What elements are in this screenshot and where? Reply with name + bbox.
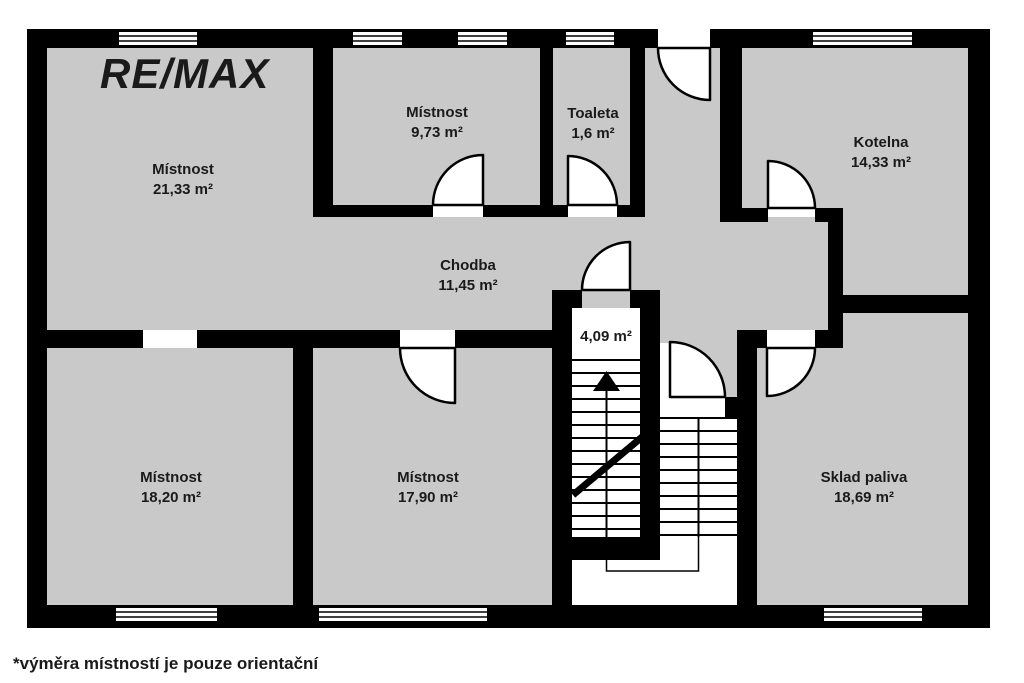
wall-segment xyxy=(197,330,400,348)
wall-segment xyxy=(313,205,433,217)
room-label-name: Místnost xyxy=(152,161,214,178)
stair-lower-landing xyxy=(572,560,660,605)
entry-door-opening xyxy=(658,29,710,48)
wall-segment xyxy=(572,537,660,560)
room-sklad-paliva-notch xyxy=(843,313,968,348)
wall-segment xyxy=(828,295,968,313)
room-label-name: Místnost xyxy=(140,469,202,486)
room-label-area: 1,6 m² xyxy=(571,125,614,142)
room-label-name: Sklad paliva xyxy=(821,469,908,486)
room-kotelna-lower xyxy=(843,208,968,295)
window-marker xyxy=(118,31,198,46)
wall-segment xyxy=(27,29,47,628)
wall-segment xyxy=(640,290,660,560)
wall-segment xyxy=(552,290,582,308)
room-label-name: Kotelna xyxy=(853,134,909,151)
remax-logo: RE/MAX xyxy=(100,50,271,97)
wall-segment xyxy=(313,29,333,217)
room-label-area: 4,09 m² xyxy=(580,328,632,345)
floor-plan: Místnost 21,33 m² Místnost 9,73 m² Toale… xyxy=(0,0,1024,683)
room-label-area: 14,33 m² xyxy=(851,154,911,171)
room-label-area: 21,33 m² xyxy=(153,181,213,198)
floor-plan-page: Místnost 21,33 m² Místnost 9,73 m² Toale… xyxy=(0,0,1024,683)
room-label-area: 9,73 m² xyxy=(411,124,463,141)
room-label-name: Místnost xyxy=(397,469,459,486)
wall-segment xyxy=(630,29,645,217)
wall-segment xyxy=(737,330,767,348)
wall-segment xyxy=(720,29,742,222)
wall-segment xyxy=(828,208,843,348)
room-label-area: 11,45 m² xyxy=(438,277,497,294)
wall-segment xyxy=(483,205,568,217)
room-label-name: Chodba xyxy=(440,257,496,274)
wall-segment xyxy=(540,29,553,205)
wall-segment xyxy=(27,330,143,348)
disclaimer-text: *výměra místností je pouze orientační xyxy=(13,654,319,673)
window-marker xyxy=(565,31,615,46)
window-marker xyxy=(457,31,508,46)
room-label-area: 17,90 m² xyxy=(398,489,458,506)
wall-segment xyxy=(725,397,757,417)
room-label-name: Toaleta xyxy=(567,105,619,122)
window-marker xyxy=(823,607,923,622)
window-marker xyxy=(115,607,218,622)
wall-segment xyxy=(815,330,843,348)
wall-segment xyxy=(293,348,313,605)
wall-segment xyxy=(720,208,768,222)
wall-segment xyxy=(968,29,990,628)
room-label-name: Místnost xyxy=(406,104,468,121)
window-marker xyxy=(352,31,403,46)
window-marker xyxy=(318,607,488,622)
room-label-area: 18,69 m² xyxy=(834,489,894,506)
wall-segment xyxy=(737,330,757,605)
room-label-area: 18,20 m² xyxy=(141,489,201,506)
room-chodba xyxy=(47,217,828,330)
wall-segment xyxy=(552,290,572,605)
window-marker xyxy=(812,31,913,46)
